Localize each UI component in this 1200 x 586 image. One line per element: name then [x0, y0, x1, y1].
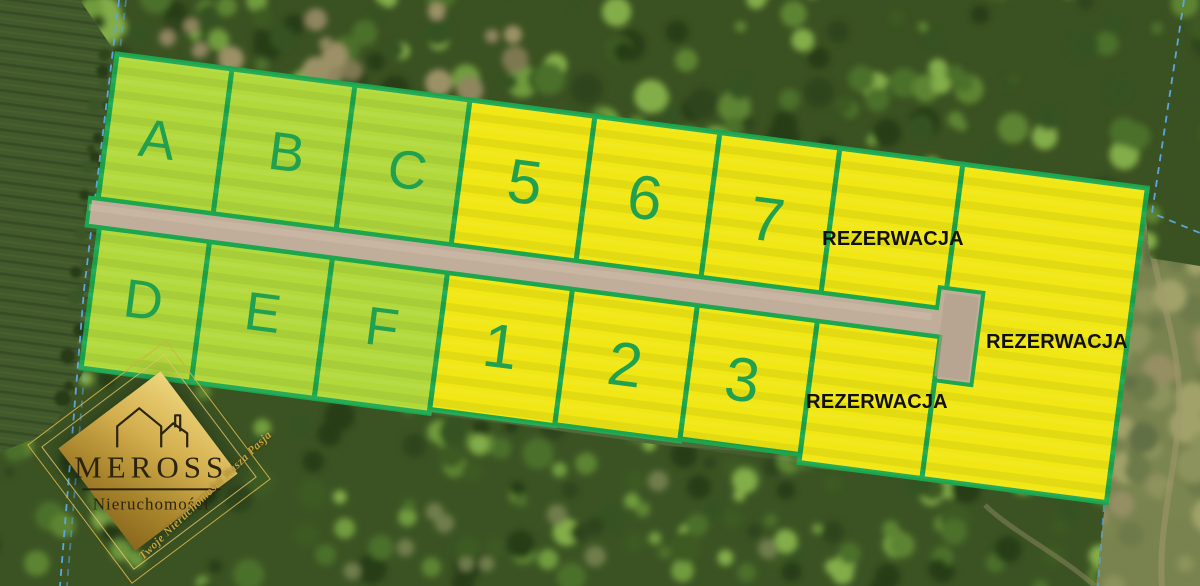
plot-E-label: E: [241, 281, 284, 345]
plot-map-canvas: ABC567DEF123 REZERWACJAREZERWACJAREZERWA…: [0, 0, 1200, 586]
plot-A-label: A: [136, 108, 179, 172]
plot-D-label: D: [120, 268, 166, 333]
reservation-label-rez_right: REZERWACJA: [986, 331, 1128, 353]
reservation-label-rez_top: REZERWACJA: [822, 228, 964, 250]
plot-C-label: C: [384, 138, 430, 203]
reservation-label-rez_bottom: REZERWACJA: [806, 391, 948, 413]
plot-B-label: B: [265, 121, 308, 185]
aerial-plot-map: ABC567DEF123 REZERWACJAREZERWACJAREZERWA…: [0, 0, 1200, 586]
